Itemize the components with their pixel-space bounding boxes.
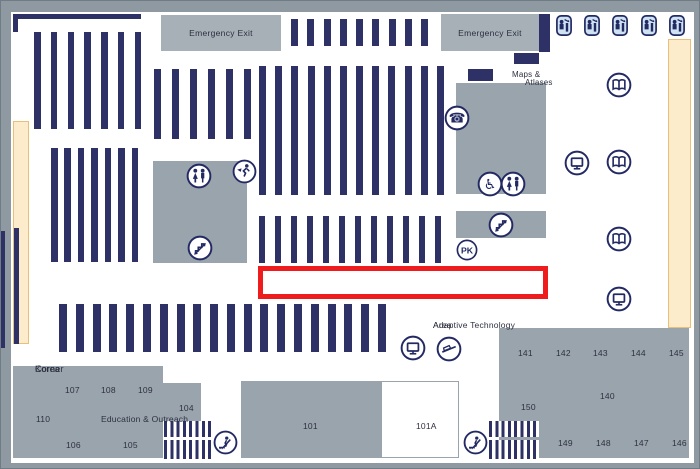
- stack-bar: [34, 32, 41, 129]
- stack-bar: [78, 148, 85, 262]
- study-carrel-icon: [612, 15, 628, 36]
- stack-bar: [344, 304, 352, 352]
- stack-bar: [291, 19, 298, 46]
- book-stacks-e: [291, 19, 428, 46]
- stack-bar: [355, 216, 361, 263]
- svg-text:☎: ☎: [449, 111, 466, 127]
- open-book-icon: [606, 226, 632, 252]
- stack-bar: [403, 216, 409, 263]
- stack-bar: [154, 69, 161, 139]
- stack-bar: [307, 216, 313, 263]
- stack-bar: [328, 304, 336, 352]
- study-carrel-icon: [584, 15, 600, 36]
- emergency-exit-label: Emergency Exit: [458, 28, 522, 38]
- stack-bar: [210, 304, 218, 352]
- stack-bar: [311, 304, 319, 352]
- stack-bar: [378, 304, 386, 352]
- room-101: [241, 381, 381, 458]
- wall-segment: [468, 69, 493, 81]
- scanner-icon: [436, 336, 462, 362]
- stack-bar: [59, 304, 67, 352]
- stack-bar: [277, 304, 285, 352]
- stack-bar: [160, 304, 168, 352]
- book-stacks-f: [259, 216, 441, 263]
- stack-bar: [64, 148, 71, 262]
- stack-bar: [51, 148, 58, 262]
- wall-segment: [514, 53, 539, 64]
- stack-bar: [435, 216, 441, 263]
- stack-bar: [260, 304, 268, 352]
- escalator-icon: [213, 430, 238, 455]
- stairs-hatch: [489, 440, 539, 459]
- open-book-icon: [606, 149, 632, 175]
- stack-bar: [275, 216, 281, 263]
- svg-text:PK: PK: [461, 245, 474, 255]
- stack-bar: [143, 304, 151, 352]
- stairs-hatch: [164, 440, 211, 459]
- stack-bar: [244, 304, 252, 352]
- svg-text:♿: ♿: [484, 177, 497, 193]
- window-strip: [668, 39, 691, 328]
- stack-bar: [340, 19, 347, 46]
- stack-bar: [109, 304, 117, 352]
- book-stacks-g: [59, 304, 386, 352]
- stairs-icon: [187, 235, 213, 261]
- book-stacks-c: [154, 69, 251, 139]
- stack-bar: [405, 66, 412, 195]
- stack-bar: [226, 69, 233, 139]
- stack-bar: [227, 304, 235, 352]
- room-101a: [381, 381, 459, 458]
- stack-bar: [190, 69, 197, 139]
- telephone-icon: ☎: [444, 105, 470, 131]
- stack-bar: [244, 69, 251, 139]
- stack-bar: [308, 66, 315, 195]
- book-stacks-b: [51, 148, 138, 262]
- stairs-icon: [488, 212, 514, 238]
- stack-bar: [389, 19, 396, 46]
- stack-bar: [132, 148, 139, 262]
- stack-bar: [421, 19, 428, 46]
- open-book-icon: [606, 72, 632, 98]
- emergency-exit-run-icon: [232, 159, 257, 184]
- stack-bar: [340, 66, 347, 195]
- stack-bar: [208, 69, 215, 139]
- computer-icon: [606, 286, 632, 312]
- stack-bar: [291, 216, 297, 263]
- stack-bar: [324, 19, 331, 46]
- stack-bar: [51, 32, 58, 129]
- stack-bar: [421, 66, 428, 195]
- study-carrel-icon: [669, 15, 685, 36]
- library-floor-map: Emergency ExitEmergency Exit☎♿PKKoreaCor…: [0, 0, 700, 469]
- stack-bar: [76, 304, 84, 352]
- stack-bar: [405, 19, 412, 46]
- emergency-exit-label: Emergency Exit: [189, 28, 253, 38]
- stack-bar: [294, 304, 302, 352]
- stack-bar: [259, 216, 265, 263]
- stack-bar: [177, 304, 185, 352]
- stack-bar: [126, 304, 134, 352]
- escalator-icon: [463, 430, 488, 455]
- stack-bar: [68, 32, 75, 129]
- computer-icon: [400, 335, 426, 361]
- restroom-icon: [186, 163, 212, 189]
- wall-segment: [13, 14, 141, 19]
- stack-bar: [356, 66, 363, 195]
- stack-bar: [437, 66, 444, 195]
- wall-segment: [14, 228, 19, 344]
- stack-bar: [101, 32, 108, 129]
- restroom-icon: [500, 171, 526, 197]
- wall-segment: [1, 231, 5, 348]
- wall-segment: [13, 14, 18, 32]
- stack-bar: [339, 216, 345, 263]
- room-education-outreach: [13, 366, 163, 458]
- stack-bar: [291, 66, 298, 195]
- emergency-exit-box: Emergency Exit: [441, 14, 539, 51]
- stack-bar: [323, 216, 329, 263]
- stack-bar: [118, 32, 125, 129]
- book-stacks-a: [34, 32, 141, 129]
- stack-bar: [172, 69, 179, 139]
- book-stacks-d: [259, 66, 444, 195]
- stack-bar: [371, 216, 377, 263]
- stack-bar: [91, 148, 98, 262]
- pk-icon: PK: [456, 239, 478, 261]
- wall-segment: [539, 14, 550, 52]
- study-carrel-icon: [641, 15, 657, 36]
- stack-bar: [307, 19, 314, 46]
- stack-bar: [419, 216, 425, 263]
- stack-bar: [372, 66, 379, 195]
- stack-bar: [275, 66, 282, 195]
- stack-bar: [324, 66, 331, 195]
- stack-bar: [135, 32, 142, 129]
- stack-bar: [84, 32, 91, 129]
- stack-bar: [388, 66, 395, 195]
- stack-bar: [372, 19, 379, 46]
- stack-bar: [105, 148, 112, 262]
- emergency-exit-box: Emergency Exit: [161, 15, 281, 51]
- stack-bar: [93, 304, 101, 352]
- stairs-hatch: [489, 421, 539, 437]
- study-carrel-icon: [556, 15, 572, 36]
- stack-bar: [118, 148, 125, 262]
- stack-bar: [259, 66, 266, 195]
- stack-bar: [193, 304, 201, 352]
- stack-bar: [361, 304, 369, 352]
- highlight-box: [258, 266, 548, 299]
- stack-bar: [356, 19, 363, 46]
- stack-bar: [387, 216, 393, 263]
- computer-icon: [564, 150, 590, 176]
